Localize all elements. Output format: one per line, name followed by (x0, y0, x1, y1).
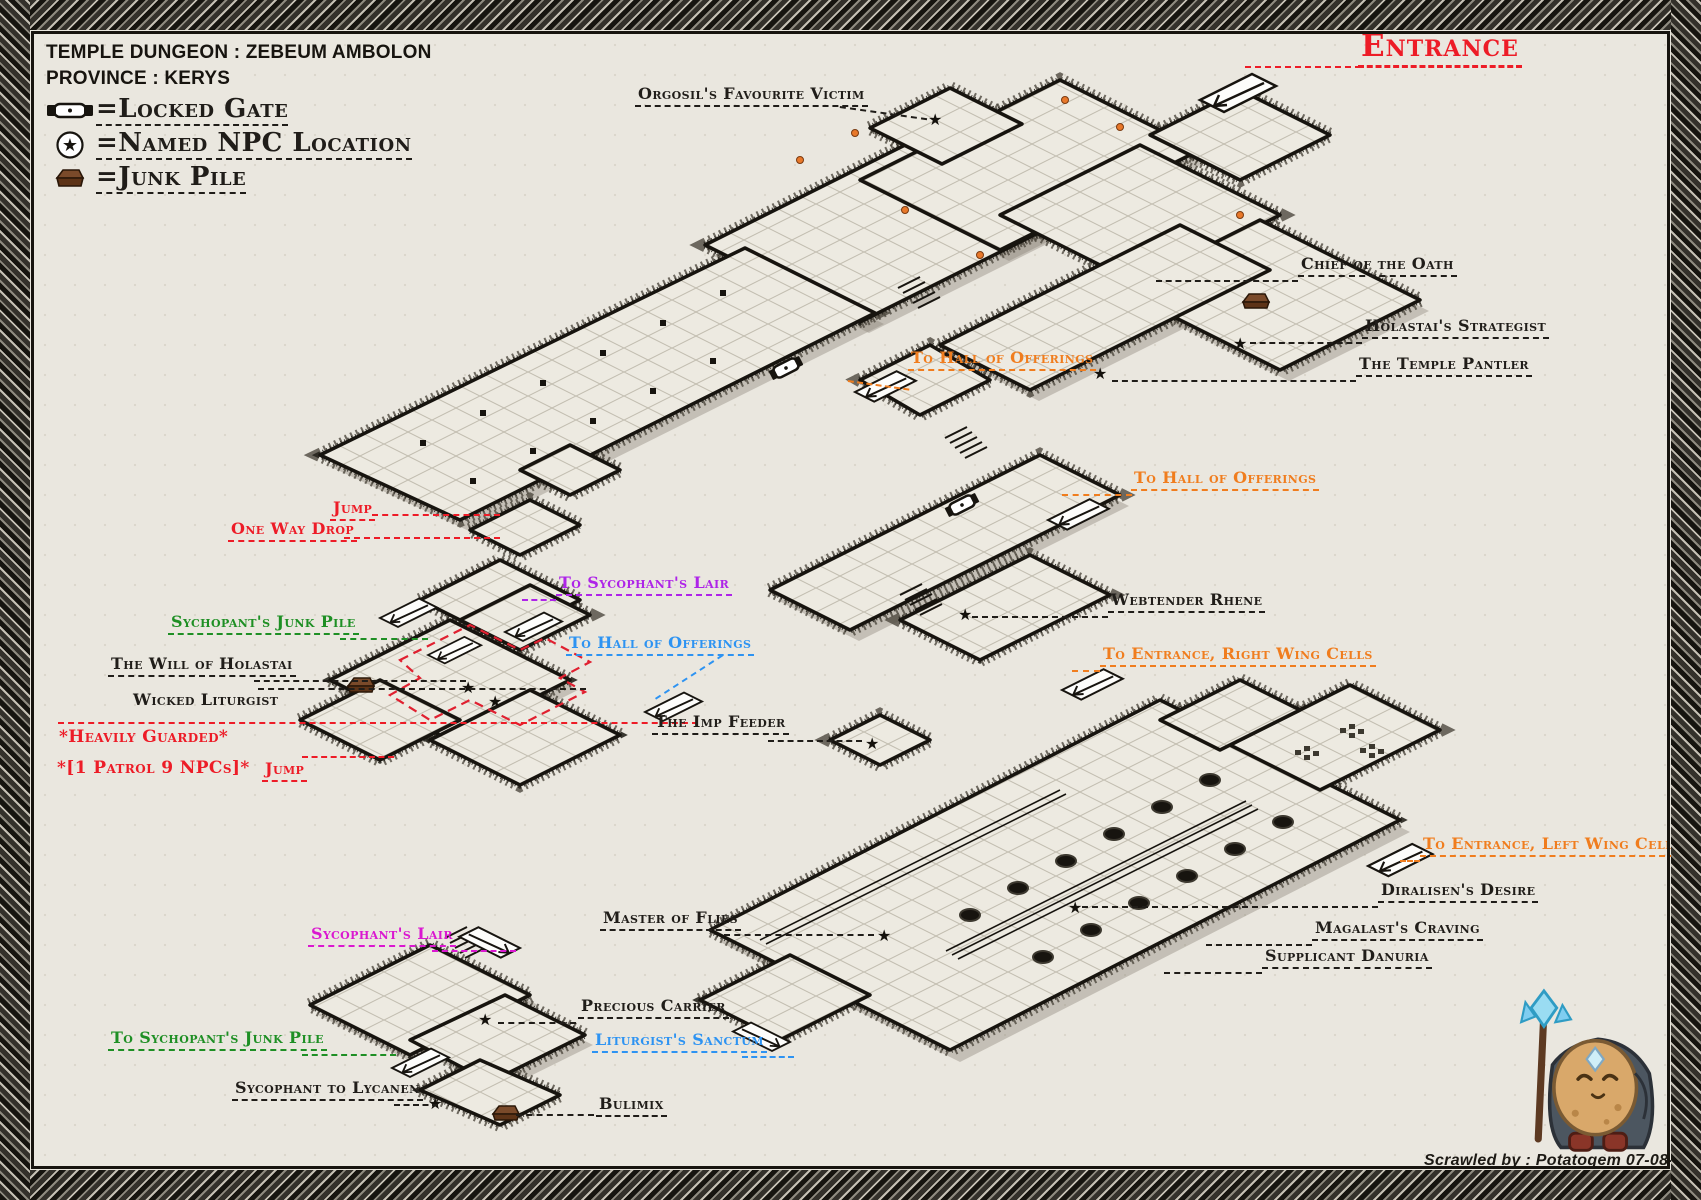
leader-line (768, 740, 862, 742)
svg-text:★: ★ (1068, 898, 1082, 917)
leader-line (340, 638, 428, 640)
leader-line (742, 1056, 794, 1058)
label-the-temple-pantler: The Temple Pantler (1356, 356, 1532, 377)
leader-line (1250, 342, 1362, 344)
leader-line (498, 1022, 576, 1024)
label-chief-of-the-oath: Chief of the Oath (1298, 256, 1457, 277)
label-to-entrance-left-wing-cells: To Entrance, Left Wing Cells (1420, 836, 1685, 857)
leader-line (394, 1104, 438, 1106)
label-bulimix: Bulimix (596, 1096, 667, 1117)
label-master-of-flies: Master of Flies (600, 910, 741, 931)
decorative-border-bottom (0, 1170, 1701, 1200)
label-sycophants-lair: Sycophant's Lair (308, 926, 456, 947)
label-to-entrance-right-wing-cells: To Entrance, Right Wing Cells (1100, 646, 1376, 667)
svg-text:★: ★ (62, 135, 78, 156)
legend-row-npc: ★ =Named NPC Location (44, 130, 412, 160)
leader-line (302, 1054, 396, 1056)
label-to-hall-of-offerings-1: To Hall of Offerings (908, 350, 1096, 371)
locked-gate-icon (44, 101, 96, 121)
label-to-hall-of-offerings-2: To Hall of Offerings (1131, 470, 1319, 491)
leader-line (1062, 494, 1132, 496)
legend-label: =Junk Pile (96, 164, 246, 194)
label-entrance: Entrance (1358, 30, 1522, 68)
map-title-line2: PROVINCE : KERYS (46, 66, 432, 92)
leader-line (432, 950, 516, 952)
svg-text:★: ★ (928, 110, 942, 129)
label-wicked-liturgist: Wicked Liturgist (130, 692, 281, 711)
leader-line (258, 688, 586, 690)
svg-text:★: ★ (865, 734, 879, 753)
leader-line (302, 756, 394, 758)
label-sycophant-to-lycanen: Sycophant to Lycanen (232, 1080, 423, 1101)
leader-line (724, 934, 874, 936)
label-jump-1: Jump (330, 500, 375, 521)
npc-star-icon: ★ (44, 130, 96, 160)
label-the-imp-feeder: The Imp Feeder (652, 714, 789, 735)
mascot-illustration (1502, 988, 1677, 1160)
svg-text:★: ★ (488, 692, 502, 711)
leader-line (1400, 860, 1420, 862)
label-precious-carrier: Precious Carrier (578, 998, 729, 1019)
legend: =Locked Gate ★ =Named NPC Location =Junk… (44, 96, 412, 198)
leader-line (254, 680, 466, 682)
label-webtender-rhene: Webtender Rhene (1108, 592, 1265, 613)
label-diralisens-desire: Diralisen's Desire (1378, 882, 1538, 903)
legend-label: =Locked Gate (96, 96, 288, 126)
leader-line (972, 616, 1108, 618)
label-patrol-npcs: *[1 Patrol 9 NPCs]* (54, 760, 253, 780)
label-magalasts-craving: Magalast's Craving (1312, 920, 1483, 941)
leader-line (516, 1114, 594, 1116)
leader-line (1072, 670, 1100, 672)
svg-text:★: ★ (877, 926, 891, 945)
label-liturgists-sanctum: Liturgist's Sanctum (592, 1032, 767, 1053)
label-heavily-guarded: *Heavily Guarded* (56, 729, 231, 749)
map-title-line1: TEMPLE DUNGEON : ZEBEUM AMBOLON (46, 40, 432, 66)
leader-line (1156, 280, 1298, 282)
dungeon-map-page: ★★ ★★ ★★ ★★ ★★ ★ TEMPLE DUNGEON : ZEBEUM… (0, 0, 1701, 1200)
map-title: TEMPLE DUNGEON : ZEBEUM AMBOLON PROVINCE… (46, 40, 432, 91)
leader-line (1245, 66, 1361, 68)
leader-line (522, 599, 556, 601)
label-to-sychopants-junk-pile: To Sychopant's Junk Pile (108, 1030, 327, 1051)
decorative-border-left (0, 0, 30, 1200)
label-supplicant-danuria: Supplicant Danuria (1262, 948, 1432, 969)
label-the-will-of-holastai: The Will of Holastai (108, 656, 296, 677)
label-to-hall-of-offerings-blue: To Hall of Offerings (566, 635, 754, 656)
label-jump-2: Jump (262, 761, 307, 782)
label-holastais-strategist: Holastai's Strategist (1362, 318, 1549, 339)
leader-line (372, 514, 500, 516)
svg-text:★: ★ (958, 605, 972, 624)
label-orgosils-favourite-victim: Orgosil's Favourite Victim (635, 86, 868, 107)
legend-row-junk: =Junk Pile (44, 164, 412, 194)
decorative-border-top (0, 0, 1701, 30)
leader-line (1164, 972, 1262, 974)
label-to-sycophants-lair: To Sycophant's Lair (556, 575, 732, 596)
leader-line (344, 537, 500, 539)
svg-text:★: ★ (1233, 334, 1247, 353)
label-sychopants-junk-pile: Sychopant's Junk Pile (168, 614, 359, 635)
junk-pile-icon (44, 168, 96, 190)
legend-label: =Named NPC Location (96, 130, 412, 160)
leader-line (58, 722, 698, 724)
svg-text:★: ★ (478, 1010, 492, 1029)
legend-row-locked-gate: =Locked Gate (44, 96, 412, 126)
decorative-border-right (1671, 0, 1701, 1200)
leader-line (1112, 380, 1356, 382)
leader-line (1082, 906, 1378, 908)
label-one-way-drop: One Way Drop (228, 521, 357, 542)
